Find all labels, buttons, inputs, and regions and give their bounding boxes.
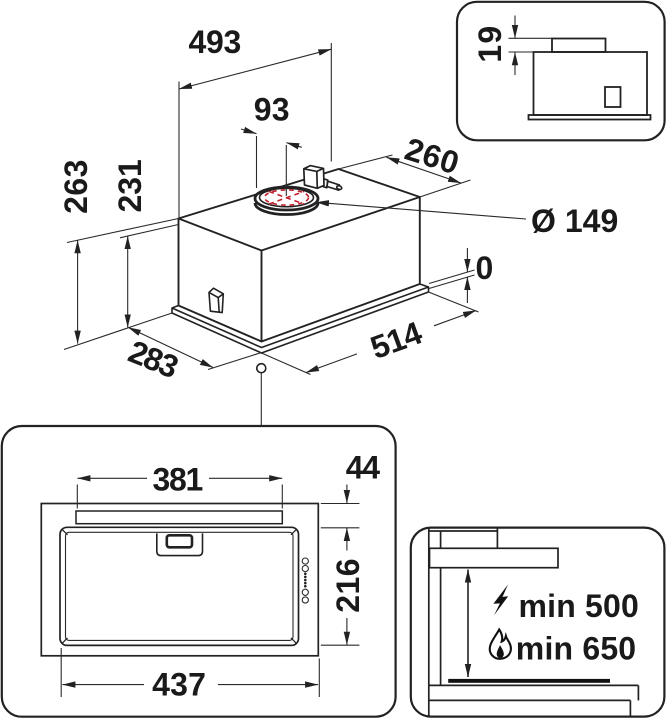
svg-text:263: 263 xyxy=(58,160,94,214)
svg-text:0: 0 xyxy=(475,250,493,286)
svg-text:93: 93 xyxy=(254,92,290,128)
svg-text:min 500: min 500 xyxy=(519,588,639,624)
svg-text:231: 231 xyxy=(112,160,148,213)
svg-text:283: 283 xyxy=(123,333,183,385)
svg-text:260: 260 xyxy=(401,131,463,182)
svg-text:19: 19 xyxy=(472,26,508,63)
svg-text:Ø 149: Ø 149 xyxy=(531,203,618,239)
svg-text:min 650: min 650 xyxy=(516,631,636,667)
svg-text:381: 381 xyxy=(153,462,204,498)
svg-text:216: 216 xyxy=(330,559,366,613)
svg-text:493: 493 xyxy=(189,24,242,60)
svg-text:44: 44 xyxy=(346,450,381,486)
svg-text:437: 437 xyxy=(152,667,206,703)
svg-text:514: 514 xyxy=(366,314,427,366)
